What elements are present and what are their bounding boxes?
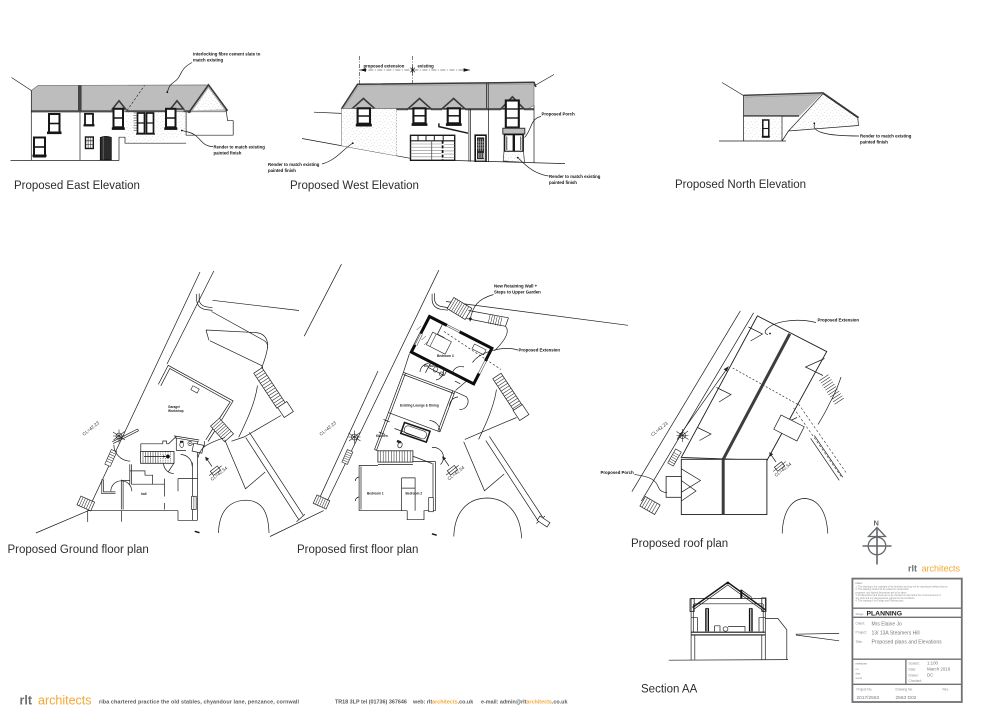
svg-text:2563 D02: 2563 D02 [896, 695, 917, 701]
svg-text:TR18 3LP tel (01736) 367646: TR18 3LP tel (01736) 367646 [335, 700, 407, 706]
svg-text:En-Suite: En-Suite [424, 364, 437, 368]
svg-text:March 2018: March 2018 [927, 667, 951, 672]
svg-text:Rev.: Rev. [943, 688, 949, 692]
svg-text:Bedroom 3: Bedroom 3 [437, 354, 454, 358]
svg-text:Steps to Upper Garden: Steps to Upper Garden [494, 290, 541, 295]
svg-text:Mrs Elaine Jo: Mrs Elaine Jo [872, 622, 903, 628]
svg-text:proposed extension: proposed extension [364, 64, 405, 69]
svg-text:Section AA: Section AA [641, 684, 698, 696]
svg-text:3. All dimensions and levels a: 3. All dimensions and levels are to be c… [856, 594, 941, 597]
svg-text:Proposed West Elevation: Proposed West Elevation [290, 180, 419, 192]
svg-text:Existing Lounge & Dining: Existing Lounge & Dining [400, 404, 439, 408]
svg-text:notes:: notes: [856, 582, 863, 585]
svg-text:Drawing No.: Drawing No. [896, 688, 914, 692]
svg-text:Proposed North Elevation: Proposed North Elevation [675, 179, 806, 191]
svg-text:4. This drawing is for Design: 4. This drawing is for Design and Planni… [856, 599, 905, 602]
svg-text:Bedroom 1: Bedroom 1 [367, 492, 384, 496]
svg-text:amnd: amnd [856, 676, 863, 680]
svg-text:rlt: rlt [908, 564, 917, 574]
svg-text:Stage:: Stage: [856, 612, 865, 616]
svg-text:Proposed Porch: Proposed Porch [542, 112, 576, 117]
svg-text:Checked:: Checked: [909, 679, 923, 683]
svg-text:2. This drawing should not be: 2. This drawing should not be scaled for… [856, 588, 910, 591]
svg-text:revisions: revisions [856, 662, 868, 666]
svg-text:no.: no. [856, 668, 860, 671]
svg-text:painted finish: painted finish [268, 168, 296, 173]
svg-text:painted finish: painted finish [214, 151, 242, 156]
svg-text:2017/2563: 2017/2563 [857, 695, 880, 701]
svg-text:Proposed plans and Elevations: Proposed plans and Elevations [872, 640, 943, 646]
svg-text:web: rltarchitects.co.uk: web: rltarchitects.co.uk [412, 700, 473, 706]
svg-text:Project:: Project: [856, 631, 868, 635]
svg-text:1. This drawing is the copyrig: 1. This drawing is the copyright of the … [856, 586, 949, 589]
svg-text:riba chartered practice the ol: riba chartered practice the old stables,… [99, 700, 300, 706]
svg-text:e-mail: admin@rltarchitects.co: e-mail: admin@rltarchitects.co.uk [481, 700, 567, 706]
svg-text:existing: existing [418, 64, 435, 69]
svg-text:CL=42.23: CL=42.23 [81, 420, 100, 437]
svg-text:Proposed Extension: Proposed Extension [818, 317, 860, 322]
svg-text:Kitchen: Kitchen [376, 434, 388, 438]
svg-text:Workshop: Workshop [168, 409, 184, 413]
svg-text:Bedroom 2: Bedroom 2 [406, 492, 423, 496]
svg-text:Proposed Extension: Proposed Extension [519, 348, 561, 353]
svg-text:Date:: Date: [909, 668, 917, 672]
svg-text:CL=42.23: CL=42.23 [318, 420, 337, 437]
svg-text:purposes, only figured dimensi: purposes, only figured dimensions are to… [856, 592, 908, 595]
svg-text:painted finish: painted finish [549, 180, 577, 185]
svg-text:Proposed Porch: Proposed Porch [601, 470, 635, 475]
svg-text:any work and any discrepancies: any work and any discrepancies reported … [856, 597, 916, 600]
svg-text:Proposed East Elevation: Proposed East Elevation [14, 180, 140, 192]
svg-text:Drawn:: Drawn: [909, 673, 919, 677]
svg-text:rlt: rlt [20, 694, 33, 708]
svg-text:date: date [856, 672, 862, 676]
svg-text:architects: architects [38, 694, 92, 708]
svg-text:hall: hall [141, 492, 147, 496]
svg-text:PLANNING: PLANNING [867, 611, 903, 618]
svg-text:architects: architects [922, 564, 961, 574]
svg-text:Client:: Client: [856, 622, 866, 626]
svg-text:Proposed first floor plan: Proposed first floor plan [297, 544, 418, 556]
svg-text:New Retaining Wall +: New Retaining Wall + [494, 284, 538, 289]
svg-text:Render to match existing: Render to match existing [860, 134, 912, 139]
svg-text:DC: DC [927, 673, 933, 678]
svg-text:Proposed roof plan: Proposed roof plan [631, 538, 728, 550]
svg-text:1:100: 1:100 [927, 661, 939, 666]
svg-text:Proposed Ground floor plan: Proposed Ground floor plan [8, 544, 149, 556]
svg-text:match existing: match existing [193, 58, 223, 63]
svg-text:Interlocking fibre cement slat: Interlocking fibre cement slate to [193, 52, 261, 57]
svg-text:Render to match existing: Render to match existing [214, 145, 266, 150]
svg-text:Project No.: Project No. [857, 688, 873, 692]
svg-text:Render to match existing: Render to match existing [268, 162, 320, 167]
svg-text:13/ 13A Steamers Hill: 13/ 13A Steamers Hill [872, 631, 920, 637]
svg-text:painted finish: painted finish [860, 140, 888, 145]
svg-text:Render to match existing: Render to match existing [549, 174, 601, 179]
svg-text:N: N [874, 519, 879, 528]
svg-text:Scale/s:: Scale/s: [909, 662, 920, 666]
svg-text:Title:: Title: [856, 640, 863, 644]
